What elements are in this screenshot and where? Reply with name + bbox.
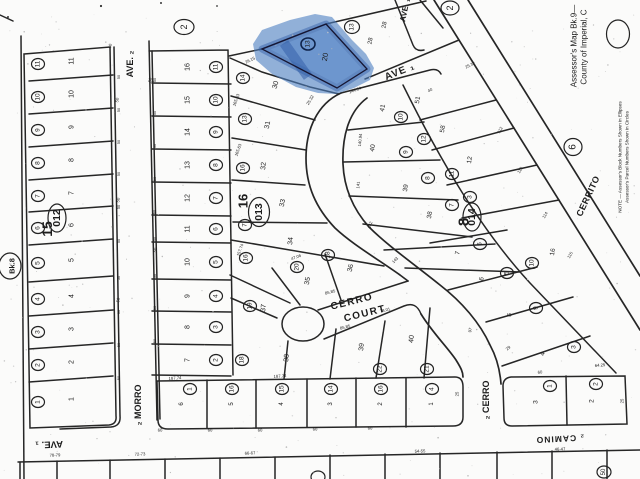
svg-text:187.74: 187.74 [168, 375, 182, 381]
svg-text:16: 16 [378, 385, 385, 393]
svg-text:3: 3 [35, 330, 42, 334]
svg-text:Assessor's Parcel Numbers Show: Assessor's Parcel Numbers Shown in Circl… [625, 110, 630, 202]
svg-text:8: 8 [425, 176, 432, 180]
svg-text:50: 50 [117, 276, 121, 280]
svg-text:46-47: 46-47 [555, 446, 567, 452]
svg-text:22: 22 [377, 365, 384, 373]
svg-text:7: 7 [213, 196, 220, 200]
svg-text:1: 1 [547, 384, 554, 388]
svg-text:34: 34 [287, 237, 295, 245]
svg-text:1: 1 [187, 387, 194, 391]
svg-text:187.74: 187.74 [273, 373, 287, 379]
svg-text:13: 13 [305, 40, 312, 48]
svg-text:15: 15 [185, 96, 192, 104]
svg-text:4: 4 [213, 294, 220, 298]
svg-text:2: 2 [179, 24, 189, 29]
svg-text:50: 50 [117, 310, 121, 314]
svg-text:33: 33 [279, 198, 287, 207]
svg-text:50: 50 [153, 210, 157, 214]
svg-text:₂ MORRO: ₂ MORRO [133, 385, 143, 426]
svg-text:7: 7 [35, 194, 42, 198]
svg-text:40: 40 [408, 335, 416, 343]
svg-text:50: 50 [153, 111, 157, 115]
svg-text:6: 6 [69, 223, 76, 227]
svg-text:37: 37 [260, 304, 268, 312]
svg-text:50: 50 [153, 339, 157, 343]
svg-text:13: 13 [185, 161, 192, 169]
svg-text:Assessor's Map Bk.9—: Assessor's Map Bk.9— [570, 5, 579, 87]
svg-text:13: 13 [242, 115, 249, 123]
svg-text:78-79: 78-79 [50, 452, 62, 458]
svg-text:5: 5 [213, 260, 220, 264]
svg-text:50: 50 [153, 237, 157, 241]
svg-text:5: 5 [69, 258, 76, 262]
svg-text:25: 25 [620, 398, 625, 403]
svg-text:20: 20 [294, 263, 301, 271]
svg-text:15: 15 [279, 385, 286, 393]
svg-text:50: 50 [153, 177, 157, 181]
svg-text:5: 5 [35, 261, 42, 265]
svg-text:4: 4 [69, 294, 76, 298]
svg-text:10: 10 [529, 259, 536, 267]
svg-text:18: 18 [325, 251, 332, 259]
svg-text:66-67: 66-67 [245, 450, 257, 456]
svg-text:9: 9 [213, 130, 220, 134]
svg-text:11: 11 [185, 225, 192, 232]
svg-text:2: 2 [213, 358, 220, 362]
svg-text:38: 38 [283, 354, 291, 362]
svg-text:8: 8 [185, 325, 192, 329]
svg-text:50: 50 [153, 274, 157, 278]
svg-text:50: 50 [117, 239, 121, 243]
svg-text:50: 50 [153, 306, 157, 310]
svg-text:6: 6 [568, 144, 579, 150]
svg-text:8: 8 [69, 158, 76, 162]
svg-text:12: 12 [421, 135, 428, 143]
svg-text:54-55: 54-55 [415, 448, 427, 454]
svg-text:50: 50 [601, 468, 607, 475]
svg-text:50: 50 [153, 144, 157, 148]
svg-text:2: 2 [445, 5, 455, 10]
svg-text:64.25: 64.25 [595, 362, 607, 368]
svg-text:11: 11 [35, 60, 42, 67]
svg-text:50: 50 [117, 343, 121, 347]
svg-text:9: 9 [533, 306, 540, 310]
svg-text:50: 50 [153, 78, 157, 82]
svg-text:12: 12 [185, 194, 192, 202]
svg-text:8: 8 [35, 161, 42, 165]
svg-text:4: 4 [429, 387, 436, 391]
svg-text:7: 7 [242, 223, 249, 227]
svg-text:AVE. ₂: AVE. ₂ [125, 51, 135, 78]
svg-text:9: 9 [69, 125, 76, 129]
svg-text:6: 6 [477, 242, 484, 246]
svg-text:Bk.8: Bk.8 [8, 258, 17, 274]
svg-text:50: 50 [117, 172, 121, 176]
svg-text:39: 39 [358, 343, 366, 351]
svg-text:13: 13 [349, 23, 356, 31]
svg-text:11: 11 [449, 170, 456, 177]
svg-text:16: 16 [236, 194, 251, 208]
svg-text:013: 013 [253, 203, 265, 221]
svg-text:6: 6 [213, 227, 220, 231]
svg-text:014: 014 [466, 208, 478, 226]
svg-text:8: 8 [213, 163, 220, 167]
svg-text:141: 141 [355, 181, 361, 189]
svg-text:21: 21 [424, 365, 431, 373]
svg-text:3: 3 [571, 345, 578, 349]
svg-text:AVE. ₁: AVE. ₁ [35, 438, 63, 450]
svg-text:50: 50 [117, 108, 121, 112]
svg-text:50: 50 [117, 140, 121, 144]
svg-text:1: 1 [69, 397, 76, 401]
svg-text:18: 18 [239, 356, 246, 364]
svg-text:7: 7 [69, 191, 76, 195]
svg-text:1: 1 [35, 400, 42, 404]
svg-text:32: 32 [260, 162, 268, 170]
svg-text:35: 35 [304, 276, 312, 285]
svg-text:16: 16 [185, 63, 192, 71]
svg-text:20: 20 [320, 52, 330, 62]
svg-text:14: 14 [185, 128, 192, 136]
svg-text:9: 9 [403, 150, 410, 154]
svg-text:25: 25 [455, 391, 460, 396]
svg-text:3: 3 [69, 327, 76, 331]
svg-text:10: 10 [69, 90, 76, 98]
svg-text:2: 2 [593, 382, 600, 386]
svg-text:10: 10 [213, 96, 220, 104]
svg-text:16: 16 [240, 164, 247, 172]
svg-text:4: 4 [35, 297, 42, 301]
svg-text:5: 5 [504, 271, 511, 275]
svg-text:50: 50 [117, 205, 121, 209]
svg-text:2: 2 [589, 399, 596, 403]
svg-text:31: 31 [264, 120, 272, 129]
svg-text:9: 9 [35, 128, 42, 132]
svg-text:2: 2 [69, 360, 76, 364]
svg-text:012: 012 [51, 209, 63, 227]
svg-text:10: 10 [35, 93, 42, 101]
svg-text:16: 16 [229, 385, 236, 393]
svg-text:19: 19 [247, 302, 254, 310]
svg-text:2: 2 [35, 363, 42, 367]
svg-text:50: 50 [117, 75, 121, 79]
svg-text:11: 11 [69, 57, 76, 64]
svg-text:₂ CERRO: ₂ CERRO [481, 380, 491, 419]
svg-text:NOTE — Assessor's Block Number: NOTE — Assessor's Block Numbers Shown in… [618, 101, 623, 213]
svg-text:9: 9 [185, 294, 192, 298]
svg-text:10: 10 [398, 113, 405, 121]
svg-text:14: 14 [328, 385, 335, 393]
svg-text:16: 16 [243, 254, 250, 262]
svg-text:3: 3 [213, 325, 220, 329]
svg-text:3: 3 [533, 400, 540, 404]
svg-text:72-73: 72-73 [135, 451, 147, 457]
svg-text:11: 11 [213, 63, 220, 70]
svg-text:3: 3 [467, 195, 474, 199]
svg-text:14: 14 [240, 74, 247, 82]
svg-text:County of Imperial, C: County of Imperial, C [580, 9, 589, 84]
svg-text:50: 50 [117, 376, 121, 380]
svg-text:7: 7 [449, 203, 456, 207]
svg-text:10: 10 [185, 258, 192, 266]
